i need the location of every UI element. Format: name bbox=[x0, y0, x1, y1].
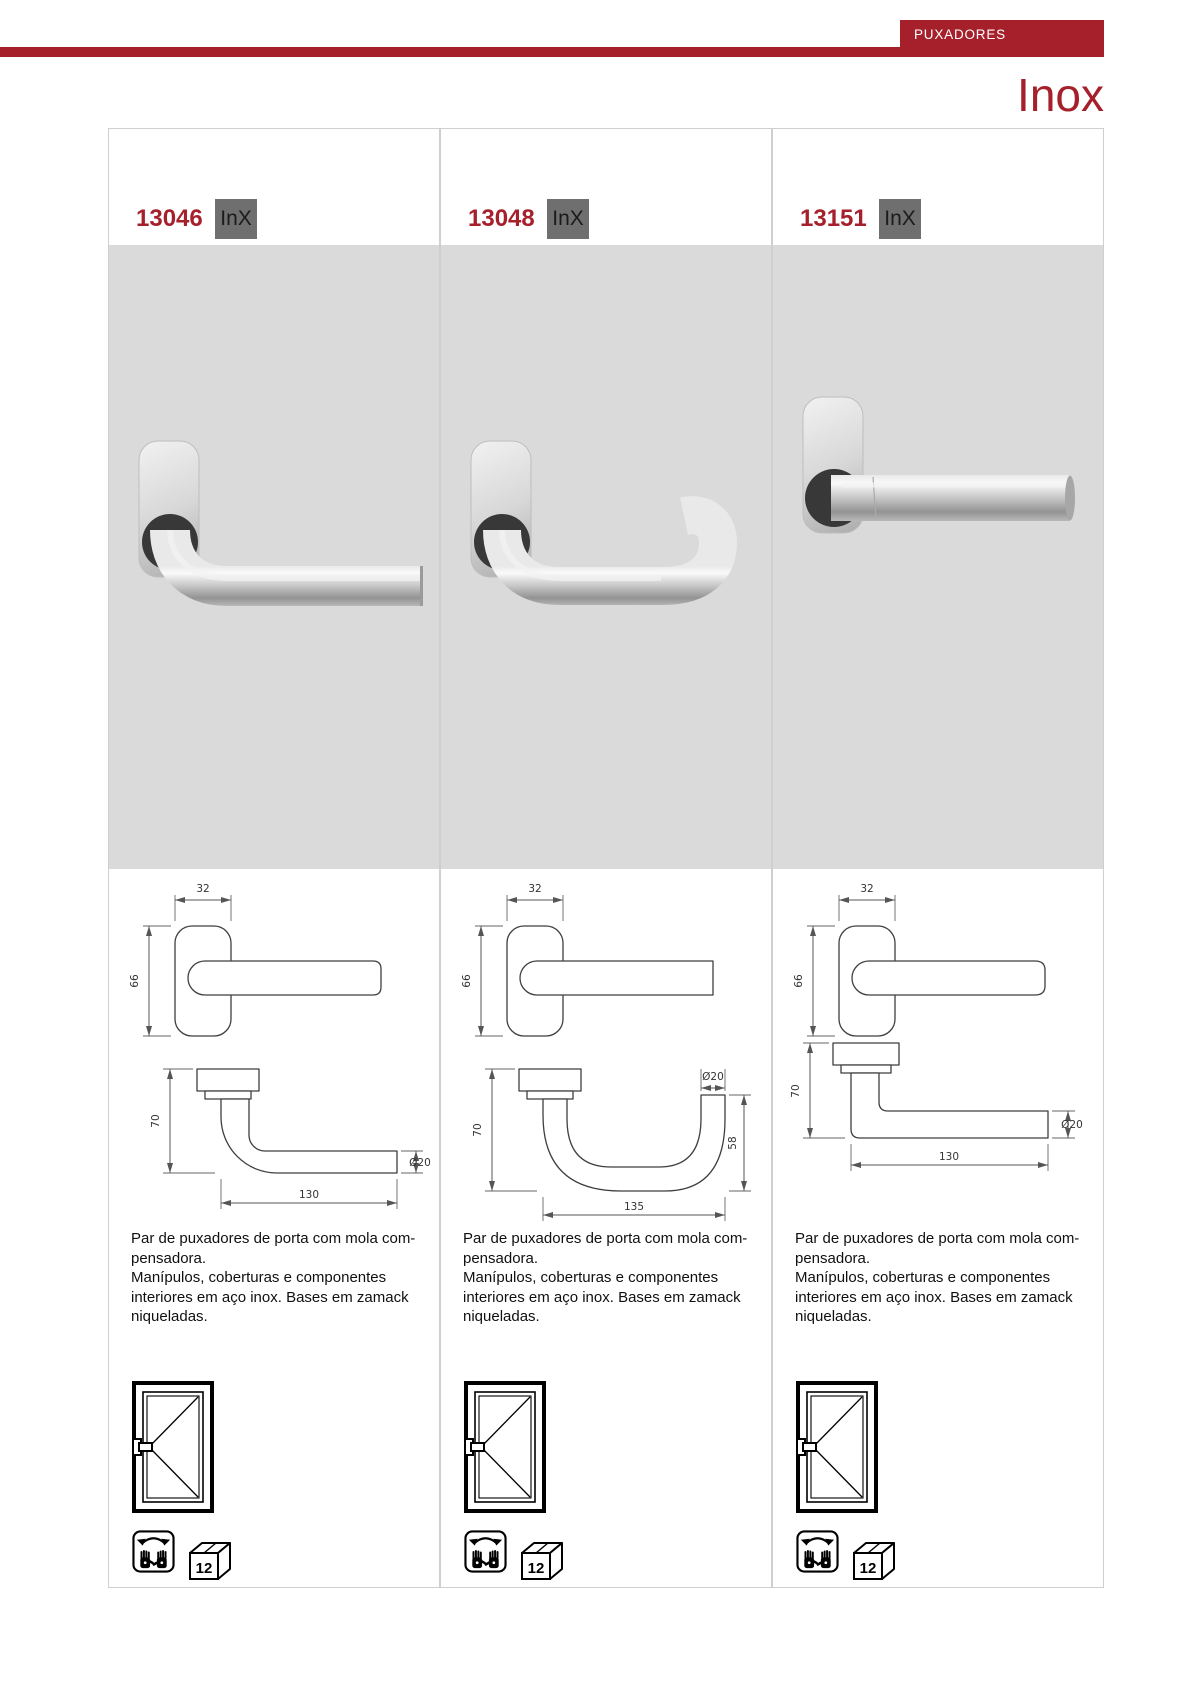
top-view: 32 66 bbox=[793, 883, 1045, 1036]
pack-quantity: 12 bbox=[528, 1560, 545, 1577]
product-header: 13048 InX bbox=[441, 129, 771, 245]
dim-plate-height: 66 bbox=[461, 974, 473, 988]
dim-tube-diameter: Ø20 bbox=[1061, 1119, 1083, 1131]
dim-tube-diameter: Ø20 bbox=[409, 1157, 431, 1169]
product-panels: 13046 InX 32 bbox=[108, 128, 1104, 1588]
dim-return-height: 58 bbox=[727, 1136, 739, 1149]
section-tab: PUXADORES bbox=[900, 20, 1104, 48]
catalog-page: PUXADORES Inox 13046 InX bbox=[0, 0, 1191, 1684]
side-view: 70 135 Ø20 58 bbox=[472, 1069, 751, 1221]
side-view: 70 130 Ø20 bbox=[790, 1043, 1083, 1171]
product-photo bbox=[773, 245, 1103, 869]
inox-material-badge: InX bbox=[215, 199, 257, 239]
dim-plate-width: 32 bbox=[196, 883, 209, 895]
product-description: Par de puxadores de porta com mola com- … bbox=[441, 1229, 771, 1327]
dim-plate-height: 66 bbox=[129, 974, 141, 988]
dim-handle-length: 135 bbox=[624, 1201, 644, 1213]
product-description: Par de puxadores de porta com mola com- … bbox=[773, 1229, 1103, 1327]
top-view: 32 66 bbox=[129, 883, 381, 1036]
dim-plate-width: 32 bbox=[860, 883, 873, 895]
dim-plate-width: 32 bbox=[528, 883, 541, 895]
product-column-13048: 13048 InX 32 bbox=[441, 129, 771, 1587]
pack-quantity-box-icon: 12 bbox=[188, 1539, 234, 1581]
dim-handle-height: 70 bbox=[472, 1123, 484, 1136]
technical-drawing: 32 66 70 bbox=[109, 869, 439, 1221]
reversible-left-right-hands-icon bbox=[796, 1530, 839, 1573]
reversible-left-right-hands-icon bbox=[132, 1530, 175, 1573]
product-header: 13046 InX bbox=[109, 129, 439, 245]
handle-photo-l-lever bbox=[109, 245, 439, 869]
reversible-left-right-hands-icon bbox=[464, 1530, 507, 1573]
top-view: 32 66 bbox=[461, 883, 713, 1036]
feature-icons: 12 bbox=[796, 1530, 1103, 1581]
dim-handle-height: 70 bbox=[790, 1084, 802, 1097]
pack-quantity-box-icon: 12 bbox=[520, 1539, 566, 1581]
dim-handle-height: 70 bbox=[150, 1114, 162, 1127]
section-tab-label: PUXADORES bbox=[914, 27, 1006, 42]
pack-quantity: 12 bbox=[196, 1560, 213, 1577]
product-description: Par de puxadores de porta com mola com- … bbox=[109, 1229, 439, 1327]
door-opening-direction-icon bbox=[796, 1381, 878, 1513]
product-code: 13046 bbox=[136, 205, 203, 233]
door-opening-direction-icon bbox=[464, 1381, 546, 1513]
product-photo bbox=[441, 245, 771, 869]
page-title: Inox bbox=[1017, 68, 1104, 122]
feature-icons: 12 bbox=[464, 1530, 771, 1581]
inox-material-badge: InX bbox=[547, 199, 589, 239]
inox-material-badge: InX bbox=[879, 199, 921, 239]
dim-handle-length: 130 bbox=[939, 1151, 959, 1163]
handle-photo-u-return-lever bbox=[441, 245, 771, 869]
door-opening-direction-icon bbox=[132, 1381, 214, 1513]
header-rule bbox=[0, 47, 1104, 57]
product-column-13151: 13151 InX 32 bbox=[773, 129, 1103, 1587]
pack-quantity-box-icon: 12 bbox=[852, 1539, 898, 1581]
product-header: 13151 InX bbox=[773, 129, 1103, 245]
technical-drawing: 32 66 70 bbox=[441, 869, 771, 1221]
side-view: 70 130 Ø20 bbox=[150, 1069, 431, 1209]
product-code: 13151 bbox=[800, 205, 867, 233]
product-code: 13048 bbox=[468, 205, 535, 233]
pack-quantity: 12 bbox=[860, 1560, 877, 1577]
feature-icons: 12 bbox=[132, 1530, 439, 1581]
dim-plate-height: 66 bbox=[793, 974, 805, 988]
dim-handle-length: 130 bbox=[299, 1189, 319, 1201]
technical-drawing: 32 66 70 bbox=[773, 869, 1103, 1221]
product-photo bbox=[109, 245, 439, 869]
dim-tube-diameter: Ø20 bbox=[702, 1071, 724, 1083]
product-column-13046: 13046 InX 32 bbox=[109, 129, 439, 1587]
handle-photo-t-bar-lever bbox=[773, 245, 1103, 869]
